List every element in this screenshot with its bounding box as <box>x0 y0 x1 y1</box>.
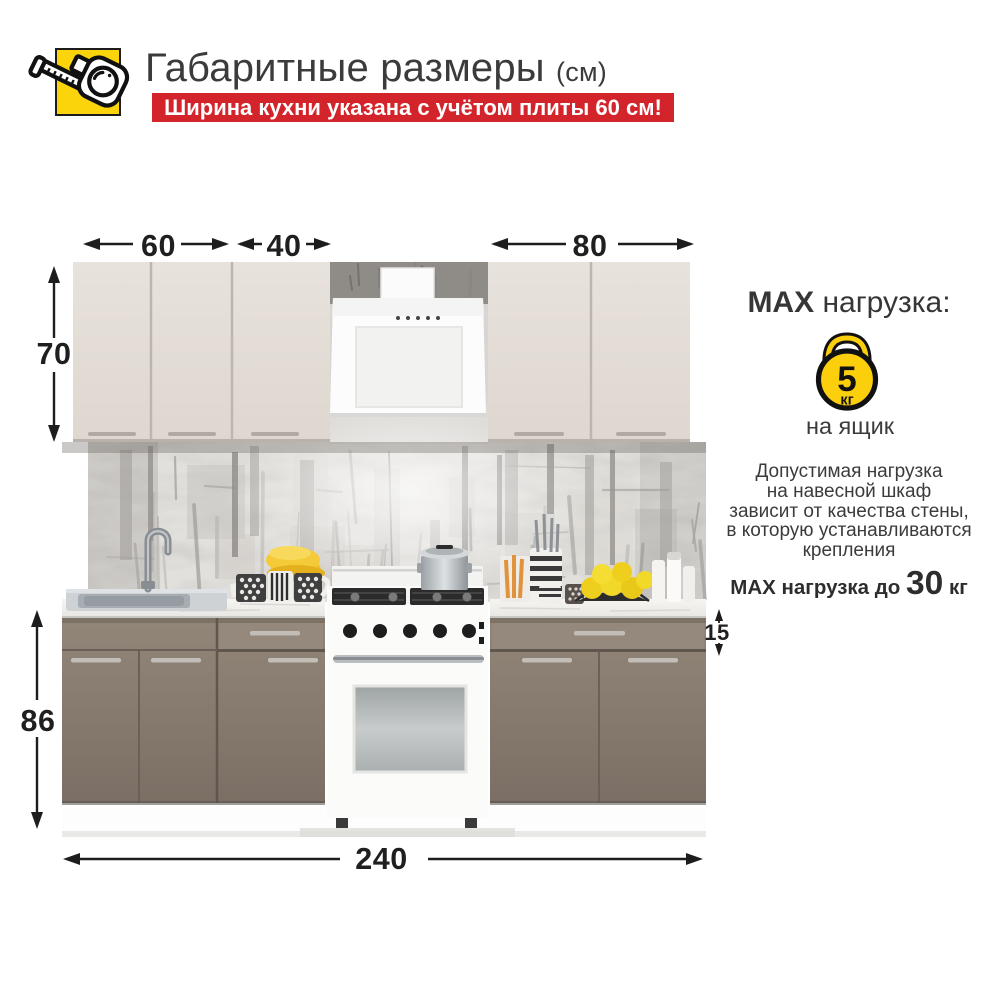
svg-text:80: 80 <box>573 229 608 263</box>
svg-text:кг: кг <box>840 393 853 409</box>
svg-text:60: 60 <box>141 229 176 263</box>
svg-text:70: 70 <box>37 337 72 371</box>
svg-text:40: 40 <box>267 229 302 263</box>
svg-text:15: 15 <box>704 620 729 645</box>
svg-text:86: 86 <box>21 704 56 738</box>
svg-text:240: 240 <box>355 842 407 876</box>
